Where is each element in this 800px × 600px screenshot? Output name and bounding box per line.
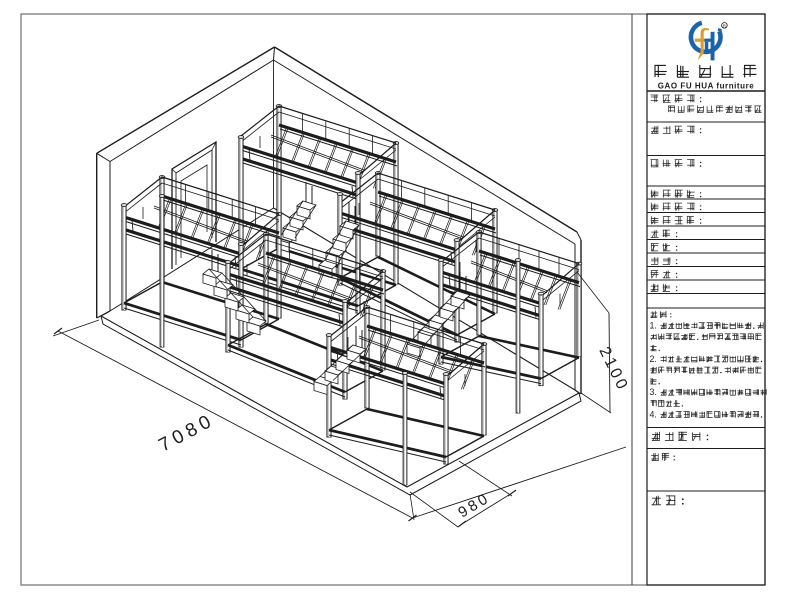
svg-text:.: . — [654, 321, 656, 331]
svg-text:GAO FU HUA furniture: GAO FU HUA furniture — [658, 82, 754, 91]
svg-text:2100: 2100 — [595, 344, 631, 394]
svg-text:7080: 7080 — [155, 410, 218, 457]
svg-text:.: . — [654, 387, 656, 397]
svg-text:R: R — [723, 23, 726, 28]
svg-text:.: . — [654, 354, 656, 364]
svg-text:.: . — [654, 409, 656, 419]
